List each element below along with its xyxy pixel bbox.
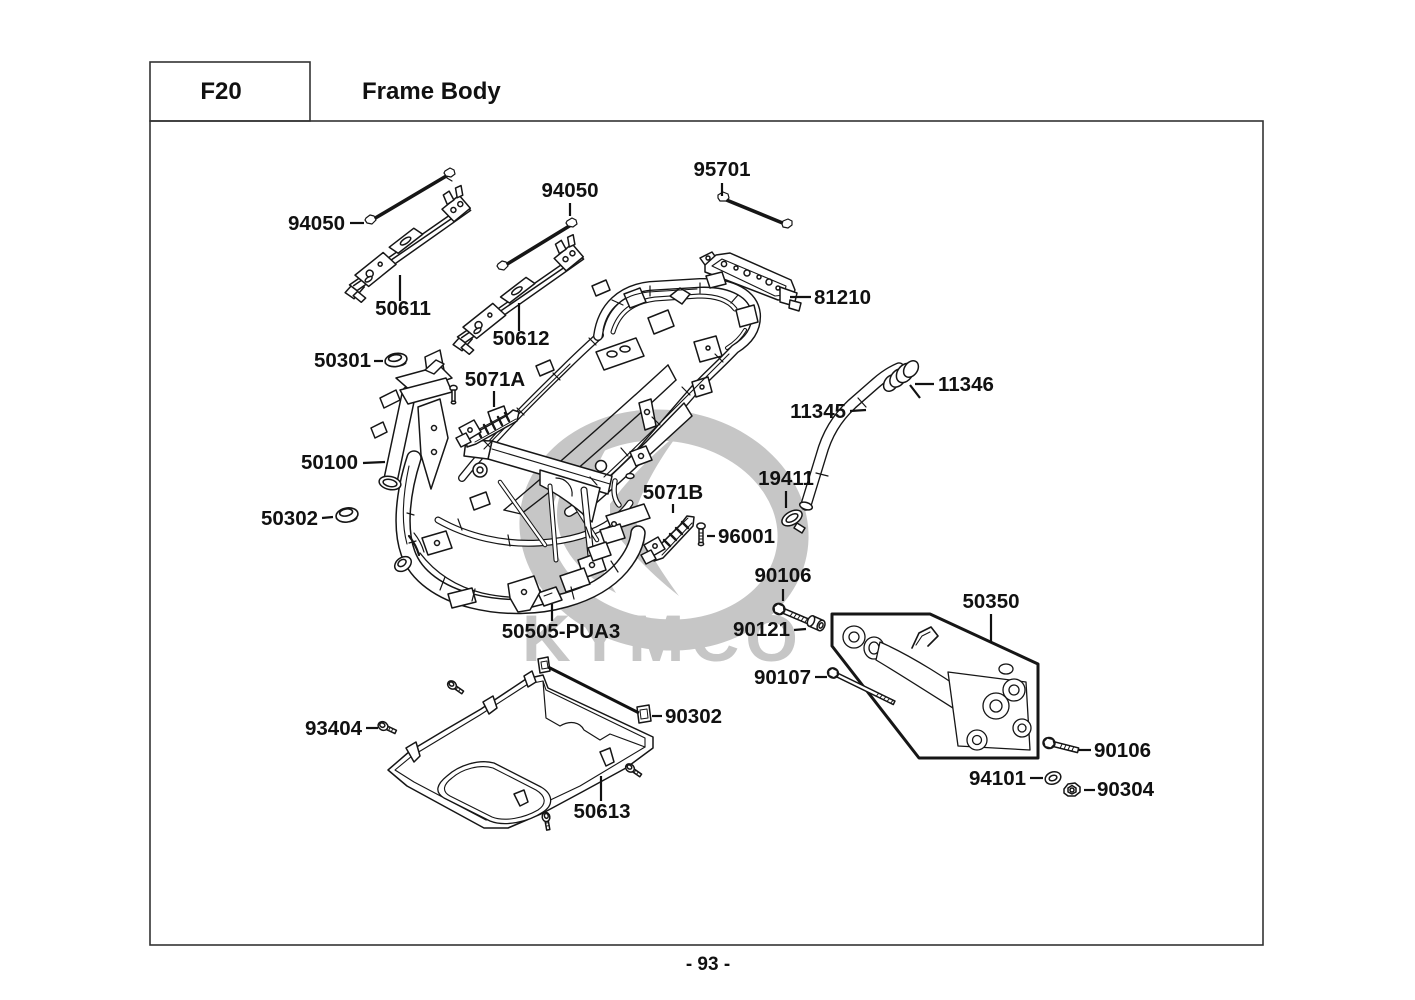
svg-text:50302: 50302	[261, 507, 318, 530]
svg-text:11345: 11345	[790, 400, 846, 423]
svg-text:90106: 90106	[754, 564, 811, 587]
svg-text:95701: 95701	[693, 158, 750, 181]
svg-text:90121: 90121	[733, 618, 790, 641]
svg-text:19411: 19411	[758, 467, 814, 490]
svg-text:94050: 94050	[288, 212, 345, 235]
svg-text:90304: 90304	[1097, 778, 1155, 801]
svg-text:- 93 -: - 93 -	[686, 954, 730, 975]
svg-text:50350: 50350	[962, 590, 1019, 613]
svg-text:90302: 90302	[665, 705, 722, 728]
svg-text:50611: 50611	[375, 297, 431, 320]
svg-text:F20: F20	[200, 78, 241, 105]
svg-text:94101: 94101	[969, 767, 1026, 790]
svg-text:93404: 93404	[305, 717, 363, 740]
svg-text:50100: 50100	[301, 451, 358, 474]
svg-text:5071A: 5071A	[465, 368, 526, 391]
svg-text:94050: 94050	[541, 179, 598, 202]
svg-text:50613: 50613	[573, 800, 630, 823]
svg-text:5071B: 5071B	[643, 481, 703, 504]
svg-text:50301: 50301	[314, 349, 371, 372]
svg-text:Frame Body: Frame Body	[362, 78, 501, 105]
svg-text:50612: 50612	[492, 327, 549, 350]
svg-text:96001: 96001	[718, 525, 775, 548]
svg-text:90107: 90107	[754, 666, 811, 689]
svg-text:81210: 81210	[814, 286, 871, 309]
svg-text:50505-PUA3: 50505-PUA3	[502, 620, 621, 643]
svg-text:11346: 11346	[938, 373, 994, 396]
svg-text:90106: 90106	[1094, 739, 1151, 762]
